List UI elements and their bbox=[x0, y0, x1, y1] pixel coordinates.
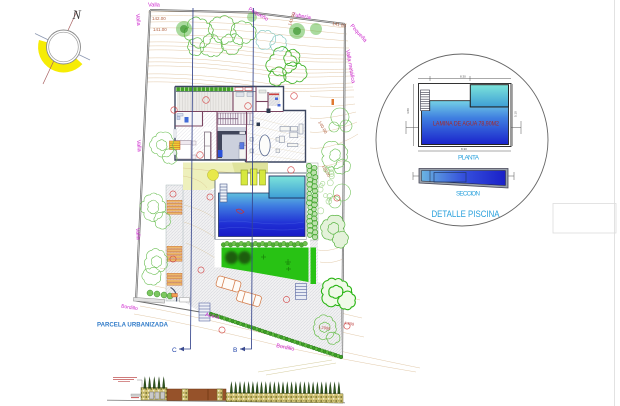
svg-text:DETALLE PISCINA: DETALLE PISCINA bbox=[432, 209, 501, 220]
svg-text:4.80: 4.80 bbox=[406, 108, 410, 114]
svg-text:5.10: 5.10 bbox=[514, 111, 518, 117]
svg-text:N: N bbox=[72, 8, 82, 22]
svg-text:8.30: 8.30 bbox=[460, 75, 466, 79]
svg-text:B: B bbox=[233, 347, 237, 354]
svg-text:142.00: 142.00 bbox=[152, 16, 166, 21]
svg-text:Valla: Valla bbox=[148, 3, 161, 9]
svg-text:Valla: Valla bbox=[135, 140, 142, 153]
svg-text:Valla: Valla bbox=[134, 228, 141, 241]
svg-text:PLANTA: PLANTA bbox=[458, 155, 480, 162]
svg-text:8.30: 8.30 bbox=[461, 147, 467, 151]
svg-text:PARCELA URBANIZADA: PARCELA URBANIZADA bbox=[97, 322, 168, 329]
svg-text:LAMINA DE AGUA 78,90M2: LAMINA DE AGUA 78,90M2 bbox=[433, 121, 499, 128]
svg-text:141.00: 141.00 bbox=[153, 27, 167, 32]
svg-text:C: C bbox=[172, 347, 177, 354]
svg-text:SECCION: SECCION bbox=[456, 191, 480, 198]
